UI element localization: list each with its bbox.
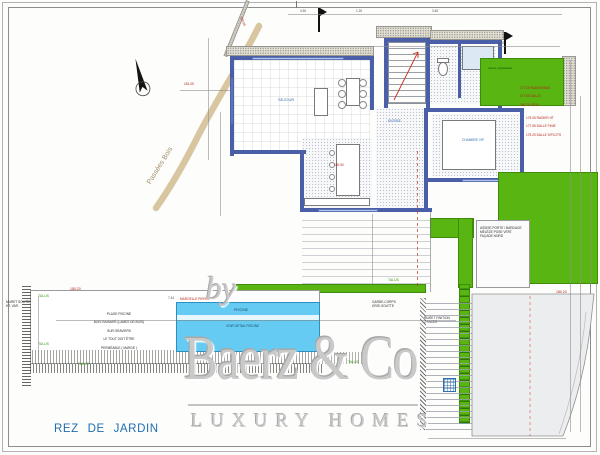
red-note-list: 177.05 RADIER/BAS 177.55 DALLE 180.70 SE…	[520, 86, 550, 107]
chair	[359, 79, 367, 87]
dim-label: 1.20	[356, 9, 362, 13]
dining-table	[346, 78, 360, 106]
boundary-line	[430, 212, 431, 292]
red-note-line: 180.70 SEUIL	[520, 103, 540, 107]
chair	[338, 90, 346, 98]
leader-line	[180, 90, 232, 91]
dim-line	[428, 438, 566, 439]
dim-line	[38, 296, 39, 360]
dim-line	[372, 214, 373, 284]
stool	[329, 150, 335, 156]
dim-label: 3.45	[432, 9, 438, 13]
talus-hatch	[322, 352, 366, 364]
stool	[329, 186, 335, 192]
stair-edge-hatch	[420, 298, 426, 430]
pool-note: VOIR DETAIL PISCINE	[226, 324, 259, 328]
outdoor-steps	[302, 214, 430, 284]
kitchen-island	[336, 144, 360, 196]
chair	[338, 79, 346, 87]
grass-hatch	[32, 350, 318, 364]
garde-corps-note: GARDE-CORPS GRIS GOUTTE	[372, 300, 396, 308]
wall-segment	[458, 42, 461, 98]
red-note-line: 175.05 RADIER HT	[526, 116, 554, 120]
talus-label: TALUS	[78, 362, 89, 366]
floor-plan-page: Passées Bois 180.85	[0, 0, 600, 455]
chair	[359, 90, 367, 98]
wall-segment	[384, 38, 430, 42]
green-area-note: toiture végétalisée	[488, 66, 512, 70]
red-note-list: 175.05 RADIER HT 177.55 DALLE FINIE 175.…	[526, 116, 561, 137]
wall-segment	[370, 56, 374, 110]
exterior-stairs	[426, 298, 472, 430]
talus-hatch-bottom	[30, 364, 322, 373]
terrace-note-line: BOIS RAINURÉ (LAMES DE BOIS)	[94, 320, 144, 324]
wall-segment	[384, 38, 388, 108]
kitchen-counter	[304, 198, 370, 206]
elevation-label: 181.05	[184, 82, 194, 86]
dim-line	[208, 38, 209, 160]
dim-line	[220, 112, 221, 216]
wall-segment	[424, 108, 428, 212]
patio-note: ASSISE PORTE / BARDAGE MÉLÈZE POSE VERT.…	[480, 226, 528, 239]
elevation-label: 180.50	[334, 163, 344, 167]
window-segment	[318, 209, 378, 212]
plan-title: REZ DE JARDIN	[54, 423, 159, 435]
dim-line-long	[56, 320, 456, 321]
wall-segment	[430, 40, 502, 44]
bed	[442, 120, 496, 170]
terrace-note-line: PLAGE PISCINE	[107, 312, 131, 316]
talus-label: TALUS	[38, 342, 49, 346]
chair	[338, 101, 346, 109]
toilet-tank	[437, 58, 449, 63]
dim-line	[238, 46, 560, 47]
red-note-line: 177.55 DALLE FINIE	[526, 124, 556, 128]
dim-label: 4.50	[300, 9, 306, 13]
dim-line	[590, 56, 591, 284]
terrace-note: PLAGE PISCINE BOIS RAINURÉ (LAMES DE BOI…	[74, 312, 164, 350]
tv-cabinet	[314, 88, 328, 116]
dim-line	[570, 60, 571, 432]
wall-segment	[520, 108, 524, 182]
red-note-line: 175.20 DALLE S/PLOTS	[526, 133, 561, 137]
exterior-gravel-band	[430, 30, 504, 40]
terrace-note-line: SUR GRAVIERS	[107, 329, 131, 333]
wall-segment	[230, 150, 306, 154]
dim-label: 7.44	[168, 296, 174, 300]
exterior-gravel-band	[562, 56, 576, 106]
window-segment	[462, 179, 502, 182]
talus-label: TALUS	[38, 294, 49, 298]
flag-marker-icon	[506, 32, 513, 40]
watermark-divider	[188, 404, 418, 406]
wall-segment	[428, 108, 524, 112]
planter-strip	[458, 218, 473, 288]
window-segment	[252, 57, 344, 60]
room-label-entree: ENTREE	[388, 119, 401, 123]
exterior-gravel-band	[226, 46, 374, 56]
drain-grate	[443, 378, 456, 392]
dim-line	[580, 96, 581, 432]
pool-edge-note: MARGELLE PIERRE	[180, 297, 210, 301]
dim-label: 4.02	[498, 41, 504, 45]
room-label-chambre: CHAMBRE VIP	[462, 138, 484, 142]
dim-line	[288, 14, 562, 15]
stair-arrow-icon	[386, 42, 428, 106]
terrace-note-line: LE TOUT DOIT ÊTRE	[103, 337, 134, 341]
chair	[359, 101, 367, 109]
exterior-gravel-band	[376, 26, 432, 38]
wall-segment	[426, 38, 430, 108]
pool-label: PISCINE	[234, 308, 248, 312]
toilet	[438, 62, 448, 76]
red-note-line: 177.55 DALLE	[520, 94, 541, 98]
talus-label: TALUS	[348, 360, 359, 364]
window-segment	[231, 78, 234, 124]
room-label-sejour: SEJOUR	[278, 97, 294, 102]
terrace-note-line: PERMÉABLE ( MARGE )	[101, 346, 137, 350]
red-note-line: 177.05 RADIER/BAS	[520, 86, 550, 90]
stool	[329, 174, 335, 180]
